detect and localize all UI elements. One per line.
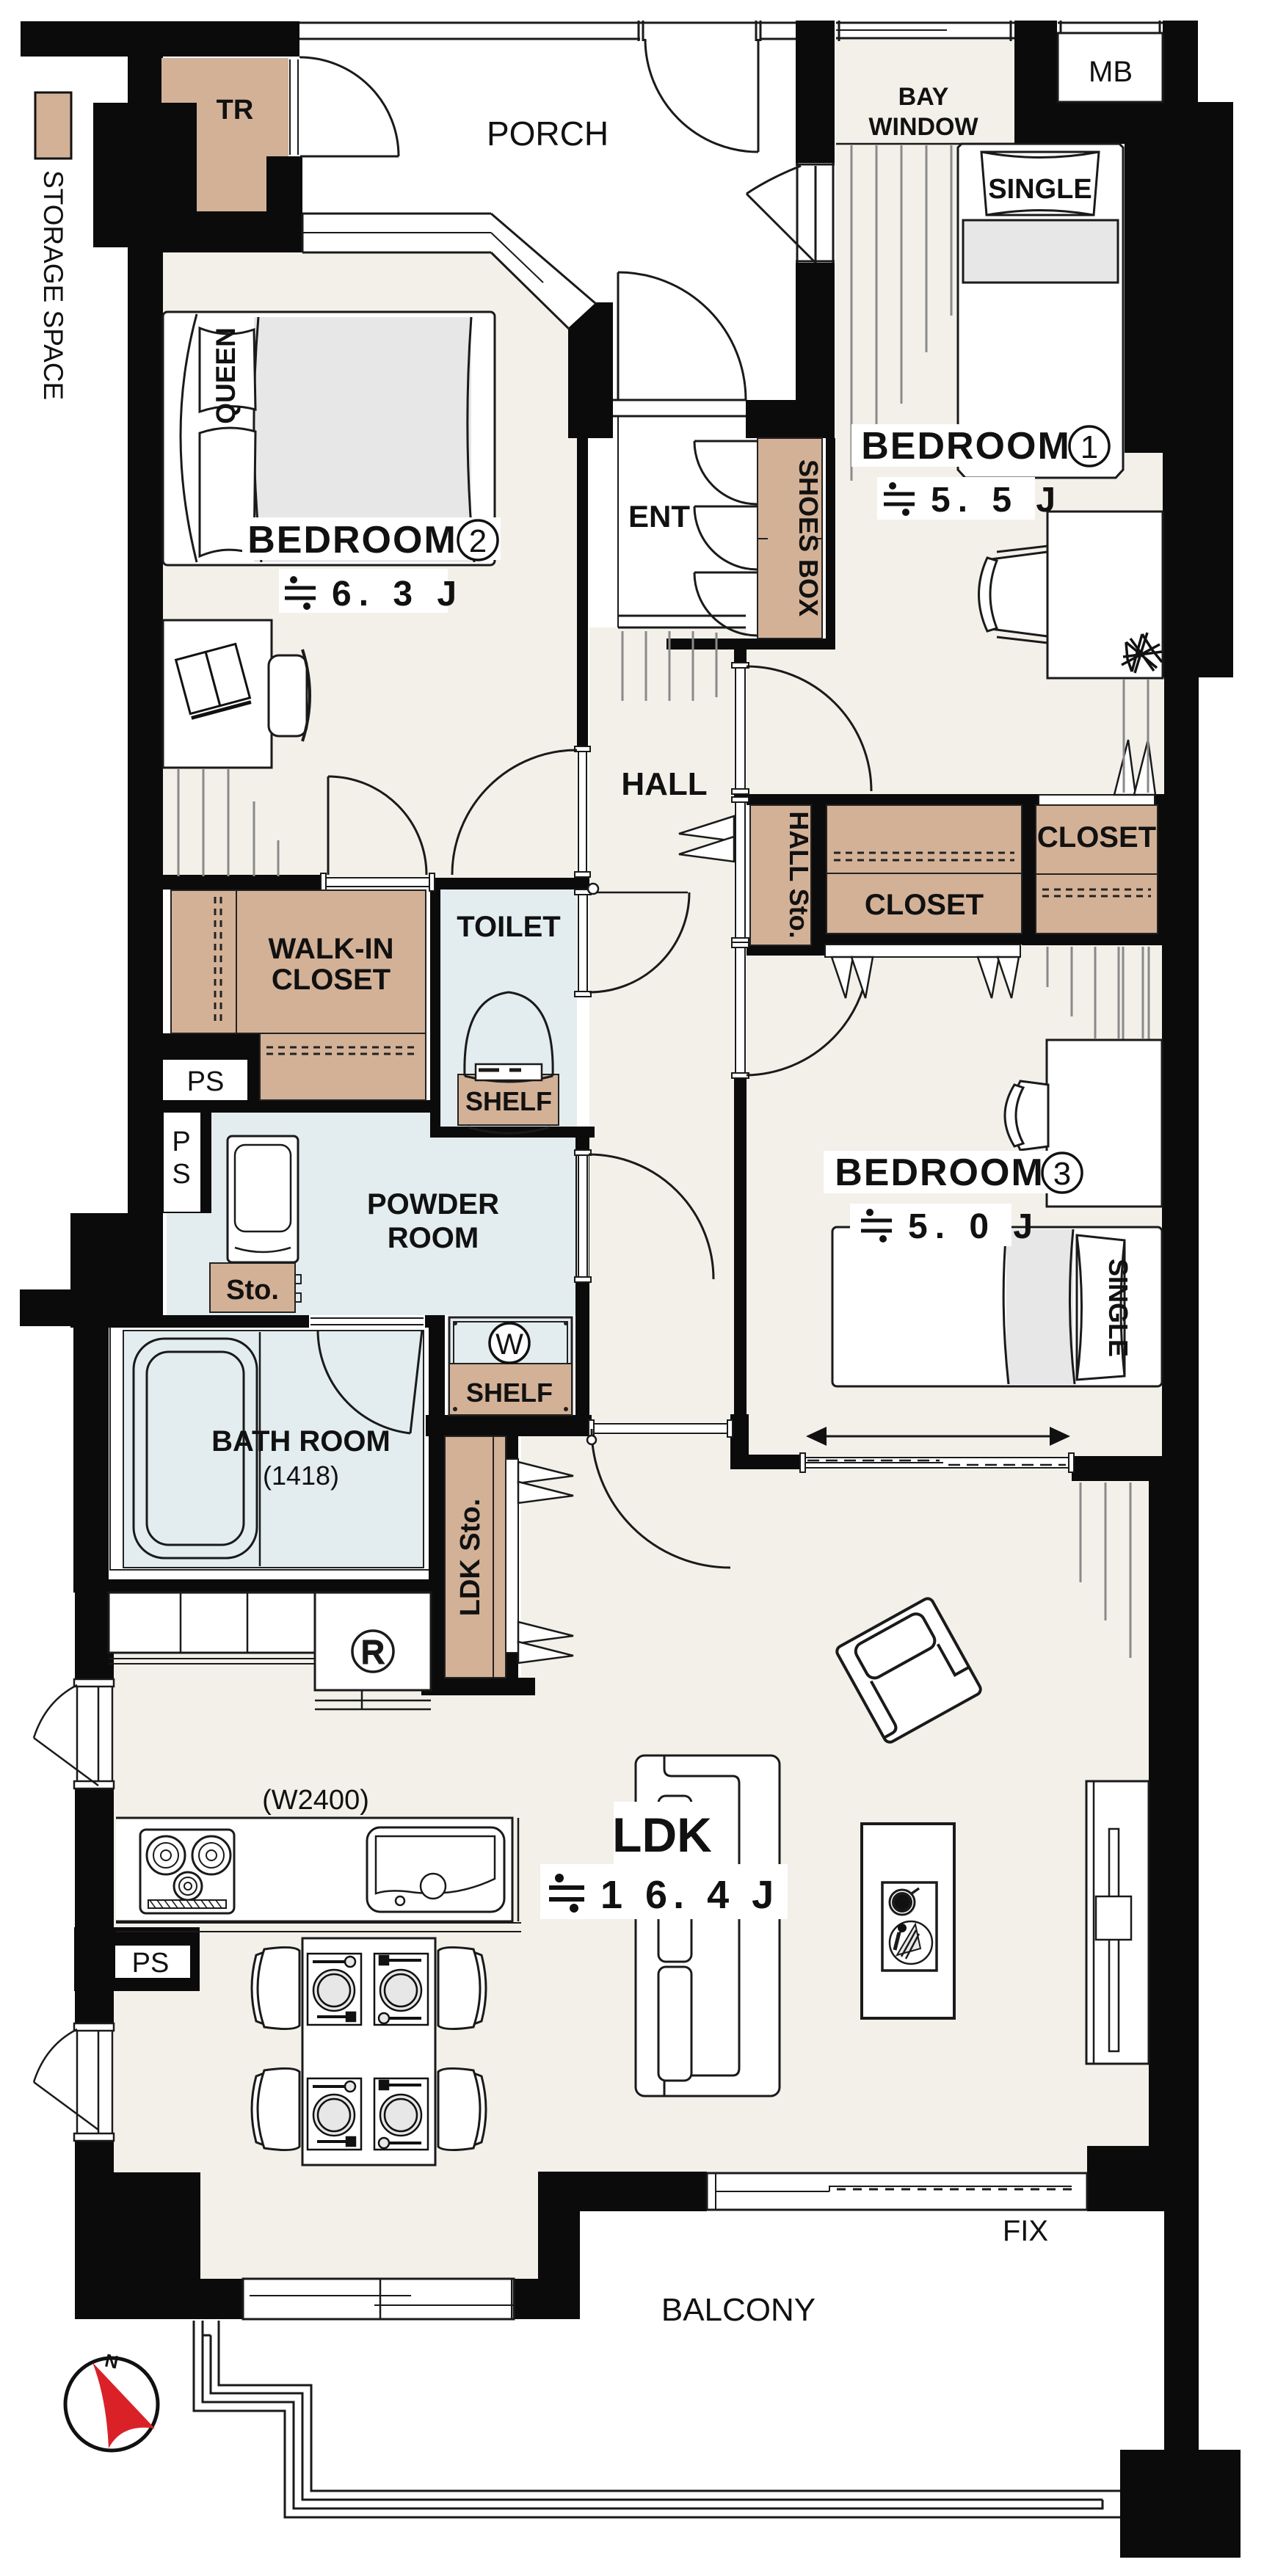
svg-text:HALL: HALL	[621, 766, 707, 802]
svg-text:STORAGE SPACE: STORAGE SPACE	[38, 170, 68, 400]
svg-text:SINGLE: SINGLE	[1103, 1259, 1133, 1357]
svg-text:POWDER: POWDER	[367, 1188, 499, 1220]
svg-text:5. 0 J: 5. 0 J	[908, 1207, 1040, 1246]
svg-text:TOILET: TOILET	[457, 911, 560, 943]
svg-text:(W2400): (W2400)	[262, 1785, 369, 1816]
svg-text:BEDROOM: BEDROOM	[861, 425, 1071, 467]
svg-text:5. 5 J: 5. 5 J	[931, 481, 1063, 520]
svg-text:1 6. 4 J: 1 6. 4 J	[600, 1873, 780, 1917]
svg-text:MB: MB	[1089, 56, 1133, 88]
svg-text:(1418): (1418)	[263, 1460, 339, 1491]
svg-text:HALL Sto.: HALL Sto.	[784, 811, 814, 938]
svg-text:BEDROOM: BEDROOM	[835, 1151, 1045, 1194]
svg-text:Sto.: Sto.	[226, 1275, 279, 1306]
svg-text:LDK: LDK	[612, 1808, 712, 1862]
svg-text:W: W	[495, 1328, 523, 1361]
svg-text:WALK-IN: WALK-IN	[268, 933, 393, 965]
svg-text:1: 1	[1080, 429, 1098, 465]
svg-text:S: S	[172, 1159, 190, 1190]
svg-text:BAY: BAY	[898, 83, 949, 111]
svg-text:CLOSET: CLOSET	[865, 889, 984, 921]
svg-text:QUEEN: QUEEN	[211, 327, 241, 424]
svg-text:FIX: FIX	[1003, 2215, 1048, 2247]
svg-text:CLOSET: CLOSET	[272, 964, 391, 996]
svg-text:R: R	[361, 1634, 385, 1670]
svg-text:PS: PS	[132, 1948, 170, 1979]
svg-text:SHELF: SHELF	[465, 1086, 552, 1116]
svg-text:3: 3	[1053, 1156, 1071, 1192]
svg-text:WINDOW: WINDOW	[868, 113, 978, 141]
svg-text:BEDROOM: BEDROOM	[247, 519, 457, 561]
svg-text:LDK Sto.: LDK Sto.	[455, 1499, 486, 1616]
svg-text:2: 2	[469, 523, 487, 559]
svg-text:SHOES BOX: SHOES BOX	[793, 459, 824, 616]
svg-text:P: P	[172, 1127, 190, 1157]
svg-text:ENT: ENT	[628, 499, 690, 534]
svg-text:BATH ROOM: BATH ROOM	[211, 1425, 391, 1458]
svg-text:ROOM: ROOM	[388, 1222, 479, 1254]
svg-text:PORCH: PORCH	[487, 114, 609, 153]
svg-text:SINGLE: SINGLE	[988, 174, 1092, 205]
svg-text:PS: PS	[187, 1066, 225, 1097]
svg-text:6. 3 J: 6. 3 J	[332, 575, 464, 614]
svg-text:BALCONY: BALCONY	[661, 2292, 816, 2328]
svg-text:TR: TR	[217, 95, 254, 125]
svg-text:SHELF: SHELF	[466, 1378, 553, 1408]
svg-text:CLOSET: CLOSET	[1037, 821, 1156, 854]
